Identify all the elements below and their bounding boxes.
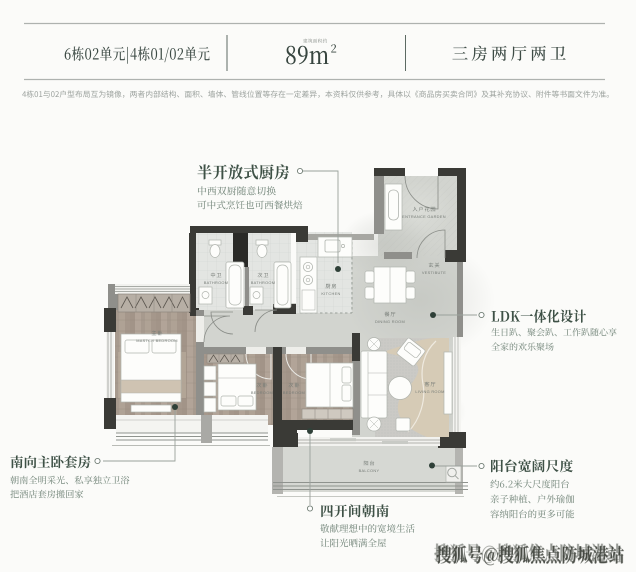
svg-text:BATHROOM: BATHROOM bbox=[251, 280, 276, 285]
svg-text:LIVING ROOM: LIVING ROOM bbox=[415, 389, 444, 394]
svg-text:DINING ROOM: DINING ROOM bbox=[375, 319, 405, 324]
svg-text:ENTRANCE GARDEN: ENTRANCE GARDEN bbox=[402, 214, 446, 219]
svg-text:BEDROOM: BEDROOM bbox=[283, 390, 305, 395]
svg-text:KITCHEN: KITCHEN bbox=[321, 291, 340, 296]
svg-text:BATHROOM: BATHROOM bbox=[204, 280, 229, 285]
svg-text:BALCONY: BALCONY bbox=[359, 468, 380, 473]
svg-text:VESTIBUTE: VESTIBUTE bbox=[422, 270, 446, 275]
svg-text:BEDROOM: BEDROOM bbox=[251, 390, 273, 395]
svg-text:MASTER BEDROOM: MASTER BEDROOM bbox=[136, 338, 178, 343]
